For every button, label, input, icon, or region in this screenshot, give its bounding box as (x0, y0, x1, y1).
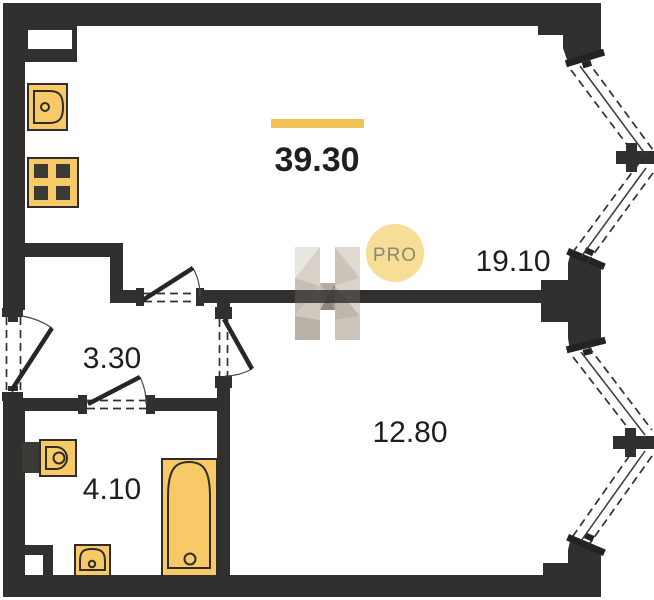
floor-plan-canvas: 39.30 19.10 3.30 12.80 4.10 PRO (0, 0, 654, 600)
bedroom-area-label: 12.80 (372, 416, 447, 449)
window-lower-south (573, 445, 652, 546)
total-area-label: 39.30 (274, 141, 359, 179)
hall-bath-wall (25, 398, 79, 411)
bathroom-door (87, 377, 146, 409)
window-upper-south (573, 346, 652, 441)
kitchen-sink-icon (28, 84, 67, 130)
room-divider-wall (204, 290, 295, 303)
accent-bar (271, 119, 364, 128)
floor-plan: 39.30 19.10 3.30 12.80 4.10 PRO (0, 0, 654, 600)
bottom-wall (3, 575, 601, 597)
living-room-door (143, 268, 200, 302)
pro-badge: PRO (366, 224, 424, 282)
bedroom-door (220, 319, 253, 376)
toilet-icon (22, 440, 76, 476)
bathroom-area-label: 4.10 (83, 473, 141, 506)
window-upper-north (571, 59, 653, 162)
pro-badge-label: PRO (373, 245, 417, 266)
living-room-area-label: 19.10 (475, 245, 550, 278)
window-mullion (613, 428, 654, 457)
stove-icon (28, 158, 78, 207)
left-wall-lower (3, 398, 25, 597)
kitchen-hall-wall (25, 243, 123, 257)
bathtub-icon (162, 459, 217, 576)
left-wall-upper (3, 3, 25, 310)
kitchen-niche (28, 30, 72, 49)
window-lower-north (573, 163, 653, 263)
walls (2, 3, 601, 597)
hallway-area-label: 3.30 (83, 342, 141, 375)
washbasin-icon (75, 545, 110, 576)
entrance-door (7, 316, 53, 391)
duct-shaft-wall (22, 545, 53, 555)
top-wall (3, 3, 601, 26)
